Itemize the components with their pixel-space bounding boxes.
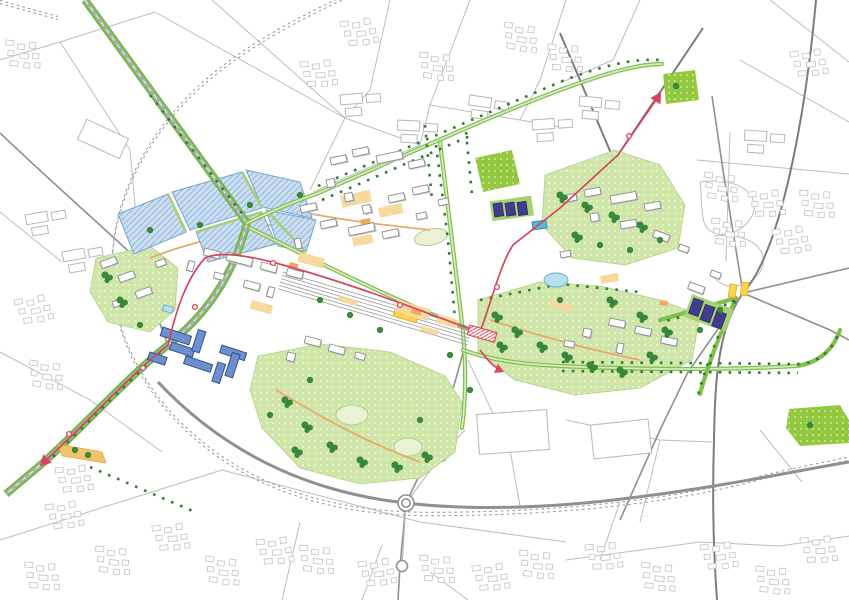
tram-stop [398,303,403,308]
masterplan-map [0,0,849,600]
masterplan-canvas [0,0,849,600]
industrial-hall [590,419,651,459]
meadow-oval [336,405,368,425]
tram-stop [141,366,146,371]
roundabout-south [397,561,408,572]
yellow-crossing [740,282,749,296]
industrial-hall [477,410,550,455]
tram-stop [627,134,632,139]
bright-green-field-topright [663,70,699,104]
tram-stop [271,261,276,266]
pond [544,273,568,287]
bright-green-field-bottomright [786,405,849,446]
yellow-crossing [728,284,737,298]
tram-stop [67,432,72,437]
tram-stop [495,285,500,290]
tram-stop [193,305,198,310]
